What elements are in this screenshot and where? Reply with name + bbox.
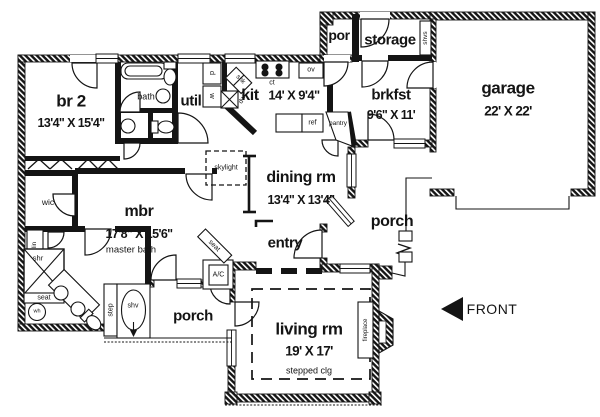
room-dims-dining: 13'4" X 13'4" xyxy=(268,194,335,207)
room-label-garage: garage xyxy=(481,80,534,97)
room-label-entry: entry xyxy=(268,236,303,251)
fixture-label-water-heater: wh xyxy=(33,309,40,315)
fixture-label-step: step xyxy=(107,303,114,316)
room-dims-kit: 14' X 9'4" xyxy=(268,89,319,102)
room-label-br2: br 2 xyxy=(56,93,86,110)
cooktop xyxy=(256,61,289,78)
toilet-bowl-2 xyxy=(158,121,174,133)
front-arrow-icon xyxy=(441,297,463,321)
room-label-porch-right: porch xyxy=(371,214,413,230)
fixture-label-washer: w xyxy=(208,93,216,98)
fireplace-notch xyxy=(379,321,386,343)
room-dims-brkfst: 9'6" X 11' xyxy=(367,109,415,122)
room-label-dining: dining rm xyxy=(266,170,335,186)
fixture-label-fridge: ref xyxy=(308,120,316,127)
room-label-bath: bath xyxy=(137,93,155,102)
bath-sink-2 xyxy=(121,119,135,133)
kitchen-counter xyxy=(276,114,302,132)
room-label-por: por xyxy=(328,28,349,42)
vanity-sink-1 xyxy=(54,286,68,300)
fixture-label-cooktop: ct xyxy=(269,80,274,87)
room-label-util: util xyxy=(181,94,202,109)
fixture-label-pantry: pantry xyxy=(329,121,347,128)
floor-plan: br 2 13'4" X 15'4" bath util kit 14' X 9… xyxy=(0,0,600,417)
fixture-label-ac: A/C xyxy=(213,272,225,279)
toilet-tank xyxy=(164,62,176,69)
front-arrow-label: FRONT xyxy=(467,302,518,316)
room-label-storage: storage xyxy=(364,33,415,48)
vanity-sink-2 xyxy=(71,302,85,316)
fixture-label-shelves: shvs xyxy=(422,31,429,44)
fixture-label-shower: shr xyxy=(33,254,43,262)
fixture-label-shower-seat: seat xyxy=(37,295,50,302)
toilet-bowl xyxy=(164,69,176,85)
room-label-wic: wic xyxy=(42,198,54,207)
room-label-living: living rm xyxy=(275,321,342,338)
room-dims-mbr: 17'8" X 15'6" xyxy=(106,228,173,241)
fixture-label-oven: ov xyxy=(307,67,314,74)
room-dims-living: 19' X 17' xyxy=(285,344,333,358)
fixture-label-skylight: skylight xyxy=(214,165,237,172)
fixture-label-dryer: d xyxy=(208,71,216,75)
room-label-mbr: mbr xyxy=(124,204,153,220)
toilet-tank-2 xyxy=(151,121,158,133)
fixture-label-tub-shelf: shv xyxy=(128,303,139,310)
ceiling-note-living: stepped clg xyxy=(286,367,332,376)
fixture-label-linen: lin xyxy=(32,242,38,248)
room-label-brkfst: brkfst xyxy=(371,88,410,103)
room-label-master-bath: master bath xyxy=(106,245,156,255)
room-label-porch-bottom: porch xyxy=(173,309,213,324)
room-dims-br2: 13'4" X 15'4" xyxy=(38,117,105,130)
bath-sink xyxy=(156,89,170,103)
room-dims-garage: 22' X 22' xyxy=(484,104,532,118)
trim-posts xyxy=(243,156,273,227)
bathtub-inner xyxy=(125,66,162,76)
fixture-label-fireplace: fireplace xyxy=(363,319,369,342)
